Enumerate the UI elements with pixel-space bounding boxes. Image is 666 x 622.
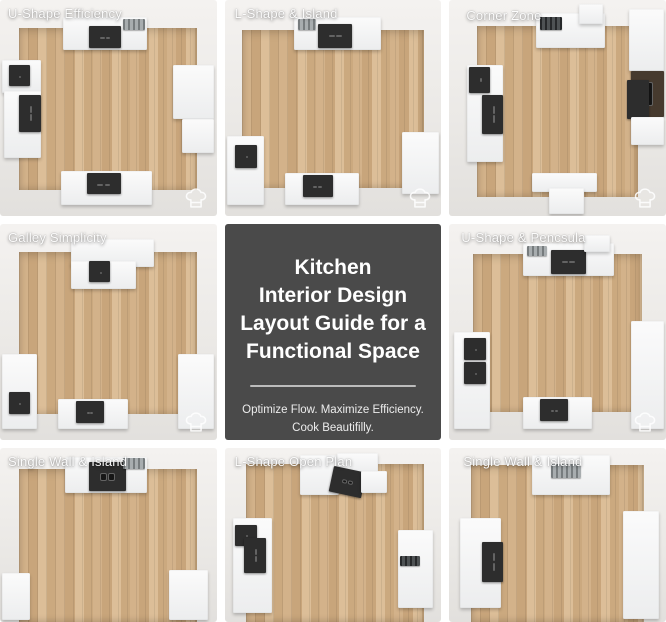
kitchen-tile-corner-zone: Corner Zone (449, 0, 666, 216)
card-subtitle-line: Optimize Flow. Maximize Efficiency. (242, 402, 424, 420)
kitchen-tile-galley-simplicity: Galley Simplicity (0, 224, 217, 440)
tile-label: L-Shape Open Plan (235, 454, 353, 469)
card-title-line: Interior Design (240, 282, 426, 310)
center-title-card: Kitchen Interior Design Layout Guide for… (225, 224, 442, 440)
card-divider (250, 385, 415, 387)
card-title: Kitchen Interior Design Layout Guide for… (240, 254, 426, 366)
kitchen-tile-u-shape-efficiency: U-Shape Efficiency (0, 0, 217, 216)
chef-hat-icon (406, 185, 434, 211)
kitchen-tile-single-wall-island-right: Single Wall & Island (449, 448, 666, 622)
chef-hat-icon (182, 185, 210, 211)
chef-hat-icon (631, 185, 659, 211)
tile-label: U-Shape & Pencsula (461, 230, 585, 245)
card-title-line: Layout Guide for a (240, 310, 426, 338)
kitchen-tile-single-wall-island-left: Single Wall & Island (0, 448, 217, 622)
wood-floor (473, 254, 642, 412)
card-subtitle-line: Cook Beautifilly. (242, 420, 424, 438)
kitchen-tile-l-shape-island: L-Shape & Island (225, 0, 442, 216)
kitchen-tile-u-shape-peninsula: U-Shape & Pencsula (449, 224, 666, 440)
tile-label: Corner Zone (466, 8, 541, 23)
tile-label: L-Shape & Island (235, 6, 338, 21)
tile-label: Single Wall & Island (8, 454, 127, 469)
card-subtitle: Optimize Flow. Maximize Efficiency. Cook… (242, 402, 424, 438)
tile-label: Single Wall & Island (463, 454, 582, 469)
card-title-line: Functional Space (240, 338, 426, 366)
chef-hat-icon (182, 409, 210, 435)
wood-floor (19, 28, 197, 190)
card-title-line: Kitchen (240, 254, 426, 282)
chef-hat-icon (631, 409, 659, 435)
tile-label: Galley Simplicity (8, 230, 107, 245)
tile-label: U-Shape Efficiency (8, 6, 122, 21)
wood-floor (242, 30, 424, 188)
kitchen-tile-l-shape-open-plan: L-Shape Open Plan (225, 448, 442, 622)
kitchen-layout-poster: U-Shape Efficiency L-Shape & Island (0, 0, 666, 622)
